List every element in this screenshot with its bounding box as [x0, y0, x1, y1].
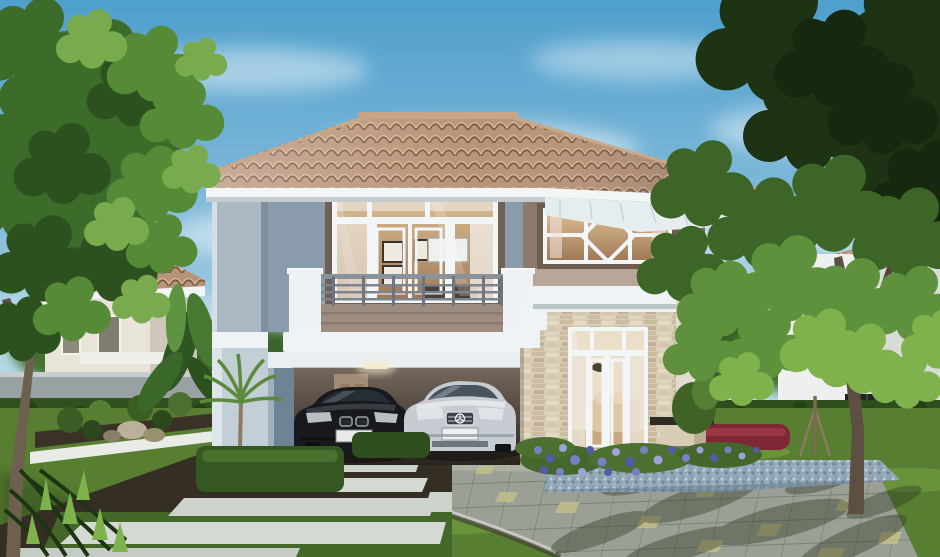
balcony-groove: [321, 312, 503, 315]
balcony-front-wall: [321, 304, 503, 334]
hedge-box-right-of-path: [352, 432, 430, 458]
left-house-balcony-band: [80, 352, 172, 364]
wheel: [495, 444, 511, 452]
hedge-box-highlight: [202, 450, 338, 462]
roof-ridge-cap: [358, 112, 518, 119]
bmw-grille: [356, 417, 368, 426]
french-doors: [568, 327, 648, 455]
rendering-canvas: [0, 0, 940, 557]
bmw-grille: [340, 417, 352, 426]
door-curtain-left: [572, 356, 585, 449]
door-curtain-right: [630, 356, 644, 449]
stone-wall-left-of-doors: [540, 330, 568, 452]
carport-downlight: [364, 362, 388, 369]
eave-shadow: [206, 197, 545, 202]
balcony-slab: [283, 332, 533, 352]
lower-intake: [432, 441, 488, 447]
balcony-groove: [321, 322, 503, 325]
diamond-window-curtain-left: [550, 214, 562, 258]
headlight-left: [416, 407, 444, 420]
headlight-right: [478, 407, 504, 420]
red-hedge-highlight: [702, 428, 786, 436]
